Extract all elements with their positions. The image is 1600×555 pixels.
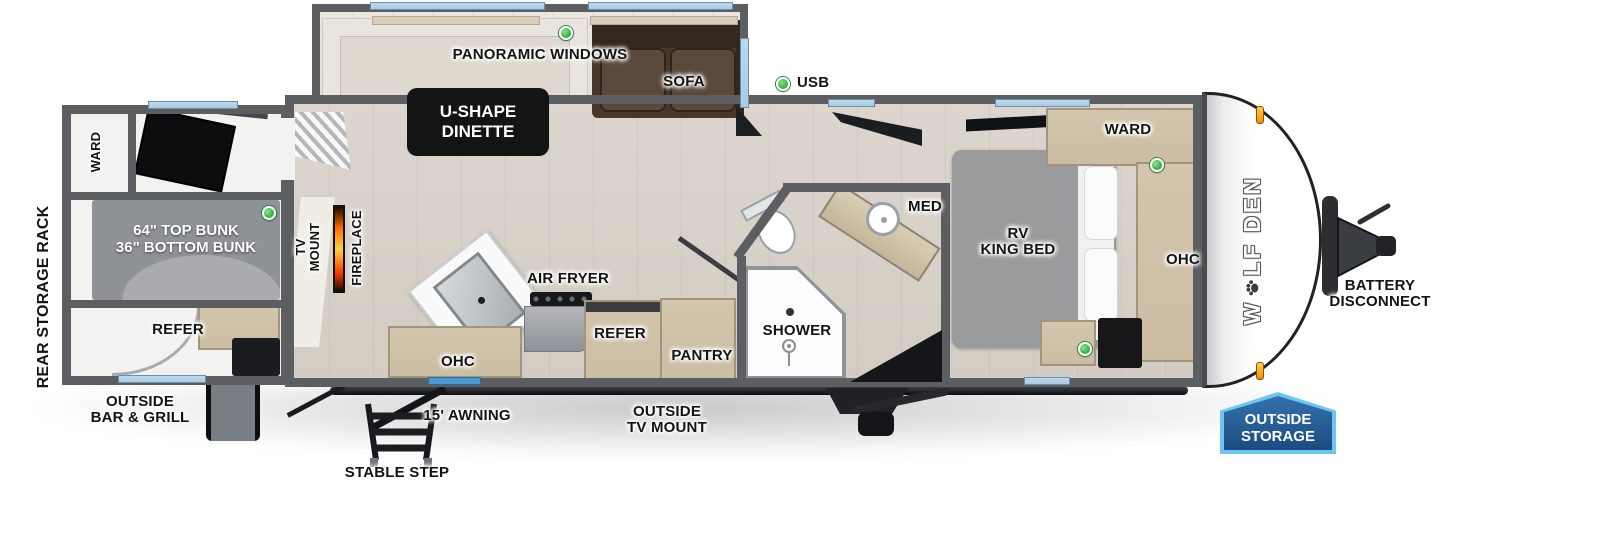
usb-led-icon (262, 206, 276, 220)
window (828, 99, 875, 107)
outside-tv-mount-bracket (822, 384, 950, 444)
window (148, 101, 238, 109)
window (370, 2, 545, 10)
rear-storage-rack-label: REAR STORAGE RACK (35, 182, 55, 412)
usb-led-icon (776, 77, 790, 91)
window (740, 38, 749, 108)
panoramic-windows-label: PANORAMIC WINDOWS (430, 47, 650, 63)
usb-label: USB (797, 75, 847, 91)
paw-icon (1243, 279, 1261, 297)
floorplan-diagram: 64" TOP BUNK 36" BOTTOM BUNK (0, 0, 1600, 555)
window (118, 375, 206, 383)
sofa-label: SOFA (644, 74, 724, 90)
outside-bar-grill-label: OUTSIDE BAR & GRILL (70, 394, 210, 426)
shower-label: SHOWER (757, 323, 837, 339)
marker-light (1256, 106, 1264, 124)
window (588, 2, 733, 10)
fireplace-label: FIREPLACE (350, 188, 366, 308)
brand-text: LF DEN (1239, 175, 1266, 276)
awning-label: 15' AWNING (407, 408, 527, 424)
entry-door-window (428, 377, 481, 385)
rear-doorway (281, 118, 295, 180)
battery-disconnect-label: BATTERY DISCONNECT (1300, 278, 1460, 310)
ohc-kitchen-label: OHC (428, 354, 488, 370)
usb-led-icon (1078, 342, 1092, 356)
pantry-label: PANTRY (662, 348, 742, 364)
u-shape-dinette-table: U-SHAPE DINETTE (407, 88, 549, 156)
refer-kitchen-label: REFER (585, 326, 655, 342)
ward-bunkroom-label: WARD (89, 92, 105, 212)
usb-led-icon (1150, 158, 1164, 172)
outside-tv-mount-label: OUTSIDE TV MOUNT (597, 404, 737, 436)
brand-text: W (1239, 300, 1266, 325)
air-fryer-label: AIR FRYER (508, 271, 628, 287)
window (995, 99, 1090, 107)
awning-bar (330, 386, 1188, 395)
rv-king-bed-label: RV KING BED (968, 226, 1068, 258)
stable-step-label: STABLE STEP (337, 465, 457, 481)
med-label: MED (895, 199, 955, 215)
usb-led-icon (559, 26, 573, 40)
ohc-bedroom-label: OHC (1148, 252, 1218, 268)
window (1024, 377, 1070, 385)
refer-bunkroom-label: REFER (143, 322, 213, 338)
outside-bar-grill-mount (206, 383, 260, 441)
ward-bedroom-label: WARD (1088, 122, 1168, 138)
tv-mount-label: TV MOUNT (294, 187, 328, 307)
marker-light (1256, 362, 1264, 380)
stable-step (342, 386, 452, 468)
bath-wall-top (783, 183, 950, 192)
brand-logo: W LF DEN (1235, 140, 1269, 360)
outside-storage-label: OUTSIDE STORAGE (1241, 411, 1315, 446)
